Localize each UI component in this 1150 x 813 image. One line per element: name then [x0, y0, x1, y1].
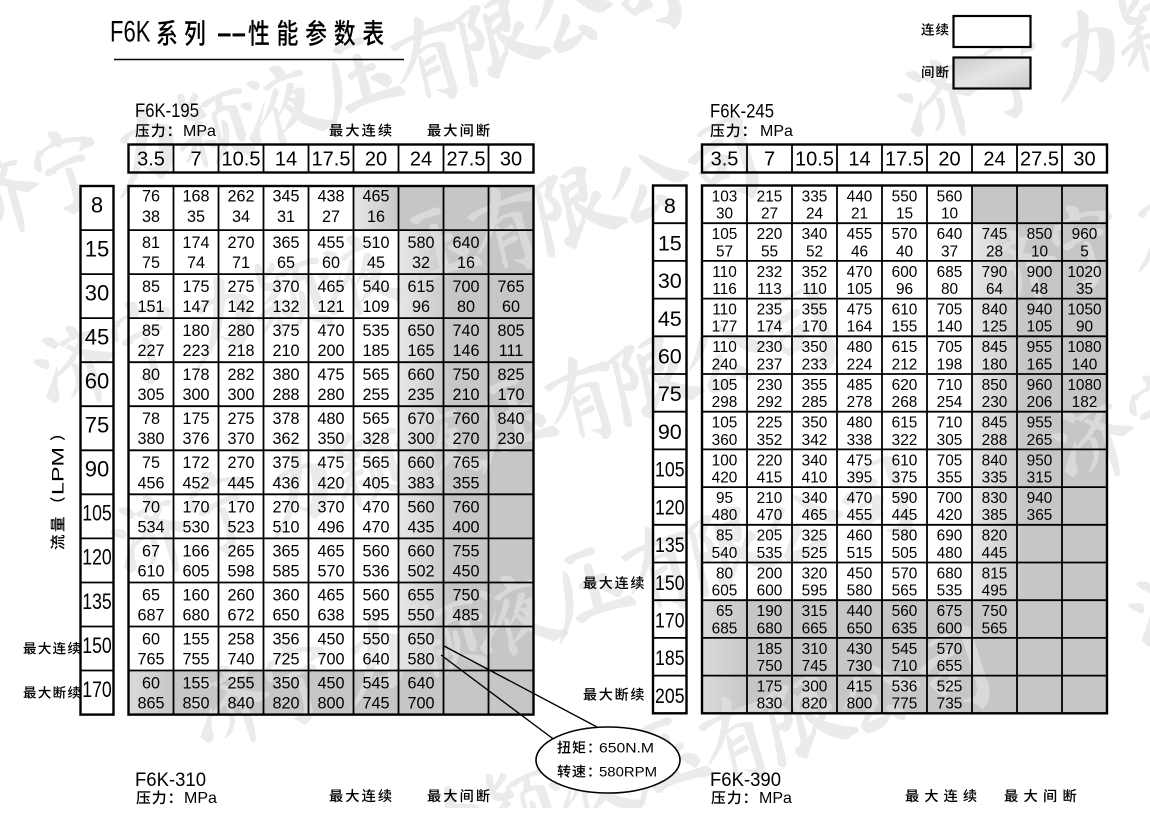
- svg-text:103: 103: [712, 188, 738, 205]
- svg-text:60: 60: [142, 675, 160, 693]
- svg-text:430: 430: [847, 641, 873, 658]
- svg-text:595: 595: [802, 583, 828, 600]
- svg-text:550: 550: [407, 606, 434, 624]
- svg-text:76: 76: [142, 188, 160, 206]
- svg-text:445: 445: [892, 507, 918, 524]
- svg-text:F6K-390: F6K-390: [710, 769, 781, 791]
- svg-text:80: 80: [142, 366, 160, 384]
- svg-text:185: 185: [757, 641, 783, 658]
- svg-text:405: 405: [362, 474, 389, 492]
- svg-text:206: 206: [1027, 394, 1053, 411]
- svg-text:110: 110: [712, 339, 737, 356]
- svg-text:232: 232: [757, 264, 783, 281]
- svg-text:450: 450: [452, 562, 479, 580]
- svg-text:305: 305: [937, 432, 963, 449]
- svg-text:335: 335: [802, 188, 828, 205]
- svg-text:160: 160: [182, 586, 209, 604]
- svg-text:185: 185: [362, 342, 389, 360]
- svg-text:90: 90: [658, 420, 682, 444]
- svg-text:164: 164: [847, 319, 873, 336]
- svg-text:180: 180: [982, 356, 1008, 373]
- svg-text:638: 638: [317, 606, 344, 624]
- svg-text:170: 170: [227, 498, 254, 516]
- svg-text:155: 155: [892, 319, 918, 336]
- svg-text:210: 210: [272, 342, 299, 360]
- svg-text:470: 470: [847, 264, 873, 281]
- svg-text:740: 740: [227, 651, 254, 669]
- svg-text:640: 640: [362, 651, 389, 669]
- svg-text:470: 470: [317, 322, 344, 340]
- svg-text:F6K-245: F6K-245: [710, 101, 774, 123]
- svg-text:470: 470: [362, 518, 389, 536]
- svg-text:545: 545: [892, 641, 918, 658]
- svg-text:175: 175: [182, 410, 209, 428]
- svg-text:227: 227: [137, 342, 164, 360]
- svg-text:46: 46: [851, 243, 868, 260]
- svg-text:580: 580: [407, 234, 434, 252]
- svg-text:30: 30: [716, 206, 733, 223]
- svg-text:75: 75: [142, 254, 160, 272]
- svg-text:7: 7: [764, 149, 775, 171]
- svg-text:465: 465: [362, 188, 389, 206]
- svg-text:10: 10: [1031, 243, 1048, 260]
- svg-text:338: 338: [847, 432, 873, 449]
- svg-text:170: 170: [182, 498, 209, 516]
- svg-text:230: 230: [982, 394, 1008, 411]
- svg-text:485: 485: [452, 606, 479, 624]
- svg-text:485: 485: [847, 377, 873, 394]
- svg-text:580RPM: 580RPM: [599, 764, 657, 780]
- svg-text:550: 550: [892, 188, 918, 205]
- svg-text:320: 320: [802, 565, 828, 582]
- svg-text:580: 580: [847, 583, 873, 600]
- svg-text:378: 378: [272, 410, 299, 428]
- svg-text:MPa: MPa: [183, 123, 216, 140]
- svg-text:730: 730: [847, 658, 873, 675]
- svg-text:380: 380: [137, 430, 164, 448]
- svg-text:595: 595: [362, 606, 389, 624]
- svg-text:282: 282: [227, 366, 254, 384]
- svg-text:27: 27: [322, 208, 340, 226]
- svg-text:155: 155: [182, 675, 209, 693]
- svg-text:30: 30: [85, 280, 109, 305]
- svg-text:820: 820: [272, 695, 299, 713]
- svg-text:455: 455: [317, 234, 344, 252]
- svg-text:640: 640: [937, 226, 963, 243]
- svg-text:570: 570: [317, 562, 344, 580]
- svg-text:105: 105: [847, 281, 873, 298]
- svg-text:24: 24: [410, 149, 432, 171]
- svg-text:75: 75: [85, 413, 109, 438]
- svg-text:218: 218: [227, 342, 254, 360]
- svg-text:755: 755: [452, 542, 479, 560]
- svg-text:355: 355: [452, 474, 479, 492]
- svg-text:536: 536: [892, 679, 918, 696]
- svg-text:190: 190: [757, 603, 783, 620]
- svg-text:225: 225: [757, 415, 783, 432]
- svg-text:840: 840: [497, 410, 524, 428]
- svg-text:438: 438: [317, 188, 344, 206]
- svg-text:113: 113: [757, 281, 782, 298]
- svg-text:550: 550: [362, 630, 389, 648]
- svg-text:615: 615: [892, 339, 918, 356]
- svg-text:5: 5: [1080, 243, 1089, 260]
- svg-text:340: 340: [802, 452, 828, 469]
- svg-text:32: 32: [412, 254, 430, 272]
- svg-text:445: 445: [227, 474, 254, 492]
- svg-text:480: 480: [712, 507, 738, 524]
- svg-text:325: 325: [802, 528, 828, 545]
- svg-text:F6K-310: F6K-310: [135, 769, 206, 791]
- svg-text:650: 650: [847, 620, 873, 637]
- svg-text:355: 355: [937, 470, 963, 487]
- svg-text:288: 288: [272, 386, 299, 404]
- svg-text:530: 530: [182, 518, 209, 536]
- svg-text:685: 685: [937, 264, 963, 281]
- svg-text:655: 655: [937, 658, 963, 675]
- svg-text:570: 570: [892, 226, 918, 243]
- svg-text:580: 580: [407, 651, 434, 669]
- svg-text:660: 660: [407, 366, 434, 384]
- svg-text:475: 475: [847, 452, 873, 469]
- svg-text:105: 105: [82, 501, 112, 526]
- svg-text:765: 765: [137, 651, 164, 669]
- svg-text:415: 415: [757, 470, 783, 487]
- svg-text:365: 365: [272, 542, 299, 560]
- svg-text:480: 480: [937, 545, 963, 562]
- svg-text:475: 475: [847, 302, 873, 319]
- svg-text:MPa: MPa: [184, 790, 217, 807]
- svg-text:690: 690: [937, 528, 963, 545]
- svg-text:342: 342: [802, 432, 828, 449]
- svg-text:52: 52: [806, 243, 823, 260]
- svg-text:67: 67: [142, 542, 160, 560]
- svg-text:300: 300: [407, 430, 434, 448]
- svg-text:60: 60: [502, 298, 520, 316]
- svg-text:255: 255: [227, 675, 254, 693]
- svg-text:155: 155: [182, 630, 209, 648]
- svg-text:322: 322: [892, 432, 918, 449]
- svg-text:65: 65: [277, 254, 295, 272]
- svg-text:210: 210: [757, 490, 783, 507]
- svg-text:535: 535: [937, 583, 963, 600]
- svg-text:745: 745: [982, 226, 1008, 243]
- svg-text:220: 220: [757, 452, 783, 469]
- svg-text:710: 710: [937, 377, 963, 394]
- svg-text:830: 830: [757, 696, 783, 713]
- svg-text:705: 705: [937, 452, 963, 469]
- svg-text:165: 165: [407, 342, 434, 360]
- svg-text:85: 85: [142, 278, 160, 296]
- svg-text:14: 14: [275, 149, 297, 171]
- svg-text:174: 174: [182, 234, 209, 252]
- svg-text:200: 200: [757, 565, 783, 582]
- svg-text:F6K: F6K: [110, 16, 151, 49]
- svg-text:254: 254: [937, 394, 963, 411]
- svg-text:845: 845: [982, 415, 1008, 432]
- svg-text:1080: 1080: [1067, 377, 1101, 394]
- svg-text:710: 710: [937, 415, 963, 432]
- svg-text:672: 672: [227, 606, 254, 624]
- svg-text:278: 278: [847, 394, 873, 411]
- svg-text:298: 298: [712, 394, 738, 411]
- svg-text:85: 85: [142, 322, 160, 340]
- svg-text:710: 710: [892, 658, 918, 675]
- svg-text:147: 147: [182, 298, 209, 316]
- svg-text:590: 590: [892, 490, 918, 507]
- svg-text:505: 505: [892, 545, 918, 562]
- svg-text:81: 81: [142, 234, 160, 252]
- svg-text:20: 20: [365, 149, 387, 171]
- svg-text:375: 375: [272, 322, 299, 340]
- svg-text:850: 850: [1027, 226, 1053, 243]
- svg-text:865: 865: [137, 695, 164, 713]
- svg-text:400: 400: [452, 518, 479, 536]
- svg-text:775: 775: [892, 696, 918, 713]
- svg-text:650: 650: [407, 630, 434, 648]
- svg-text:815: 815: [982, 565, 1008, 582]
- svg-text:74: 74: [187, 254, 205, 272]
- svg-text:830: 830: [982, 490, 1008, 507]
- svg-text:80: 80: [457, 298, 475, 316]
- svg-text:265: 265: [227, 542, 254, 560]
- svg-text:545: 545: [362, 675, 389, 693]
- svg-text:365: 365: [1027, 507, 1053, 524]
- svg-text:650: 650: [407, 322, 434, 340]
- svg-text:340: 340: [802, 490, 828, 507]
- svg-text:370: 370: [317, 498, 344, 516]
- svg-text:223: 223: [182, 342, 209, 360]
- svg-text:745: 745: [802, 658, 828, 675]
- svg-text:440: 440: [847, 188, 873, 205]
- svg-text:100: 100: [712, 452, 738, 469]
- svg-text:237: 237: [757, 356, 783, 373]
- svg-text:233: 233: [802, 356, 828, 373]
- svg-text:534: 534: [137, 518, 164, 536]
- svg-text:28: 28: [986, 243, 1003, 260]
- svg-text:365: 365: [272, 234, 299, 252]
- svg-text:38: 38: [142, 208, 160, 226]
- svg-text:395: 395: [847, 470, 873, 487]
- svg-text:30: 30: [658, 269, 682, 293]
- svg-text:255: 255: [362, 386, 389, 404]
- svg-text:515: 515: [847, 545, 873, 562]
- svg-text:465: 465: [802, 507, 828, 524]
- svg-text:605: 605: [182, 562, 209, 580]
- svg-text:560: 560: [362, 586, 389, 604]
- svg-text:495: 495: [982, 583, 1008, 600]
- svg-text:383: 383: [407, 474, 434, 492]
- svg-text:110: 110: [712, 264, 737, 281]
- svg-text:598: 598: [227, 562, 254, 580]
- svg-text:375: 375: [892, 470, 918, 487]
- svg-text:675: 675: [937, 603, 963, 620]
- svg-text:17.5: 17.5: [885, 149, 924, 171]
- svg-text:496: 496: [317, 518, 344, 536]
- svg-text:950: 950: [1027, 452, 1053, 469]
- svg-text:LPM: LPM: [48, 447, 67, 495]
- svg-text:535: 535: [757, 545, 783, 562]
- svg-text:502: 502: [407, 562, 434, 580]
- svg-text:700: 700: [937, 490, 963, 507]
- svg-text:350: 350: [317, 430, 344, 448]
- svg-text:57: 57: [716, 243, 733, 260]
- svg-text:700: 700: [317, 651, 344, 669]
- svg-text:470: 470: [757, 507, 783, 524]
- svg-text:165: 165: [1027, 356, 1053, 373]
- svg-text:340: 340: [802, 226, 828, 243]
- svg-text:7: 7: [190, 149, 201, 171]
- svg-text:105: 105: [712, 377, 738, 394]
- svg-text:350: 350: [802, 339, 828, 356]
- svg-text:8: 8: [664, 194, 676, 218]
- svg-text:75: 75: [142, 454, 160, 472]
- svg-text:24: 24: [806, 206, 824, 223]
- svg-text:280: 280: [317, 386, 344, 404]
- svg-text:132: 132: [272, 298, 299, 316]
- svg-text:3.5: 3.5: [137, 149, 165, 171]
- svg-text:565: 565: [982, 620, 1008, 637]
- svg-text:96: 96: [896, 281, 913, 298]
- svg-text:955: 955: [1027, 415, 1053, 432]
- svg-text:650N.M: 650N.M: [599, 740, 654, 756]
- svg-text:560: 560: [362, 542, 389, 560]
- svg-text:230: 230: [497, 430, 524, 448]
- svg-text:750: 750: [757, 658, 783, 675]
- svg-text:24: 24: [983, 149, 1005, 171]
- svg-text:37: 37: [941, 243, 958, 260]
- svg-text:224: 224: [847, 356, 873, 373]
- svg-text:200: 200: [317, 342, 344, 360]
- svg-text:105: 105: [712, 226, 738, 243]
- svg-text:660: 660: [407, 454, 434, 472]
- svg-text:510: 510: [362, 234, 389, 252]
- svg-text:465: 465: [317, 542, 344, 560]
- svg-text:35: 35: [1076, 281, 1093, 298]
- svg-text:85: 85: [716, 528, 733, 545]
- svg-text:380: 380: [272, 366, 299, 384]
- svg-text:940: 940: [1027, 490, 1053, 507]
- svg-text:665: 665: [802, 620, 828, 637]
- svg-text:230: 230: [757, 339, 783, 356]
- svg-text:15: 15: [85, 236, 109, 261]
- svg-text:305: 305: [137, 386, 164, 404]
- svg-text:215: 215: [757, 188, 783, 205]
- svg-text:170: 170: [802, 319, 828, 336]
- svg-text:620: 620: [892, 377, 918, 394]
- svg-text:465: 465: [317, 278, 344, 296]
- svg-text:240: 240: [712, 356, 738, 373]
- svg-text:840: 840: [227, 695, 254, 713]
- svg-text:310: 310: [802, 641, 828, 658]
- svg-text:60: 60: [85, 369, 109, 394]
- svg-text:410: 410: [802, 470, 828, 487]
- svg-text:560: 560: [407, 498, 434, 516]
- svg-text:300: 300: [802, 679, 828, 696]
- svg-text:750: 750: [982, 603, 1008, 620]
- svg-text:172: 172: [182, 454, 209, 472]
- svg-text:376: 376: [182, 430, 209, 448]
- svg-text:48: 48: [1031, 281, 1048, 298]
- svg-text:292: 292: [757, 394, 783, 411]
- svg-text:95: 95: [716, 490, 733, 507]
- svg-text:205: 205: [757, 528, 783, 545]
- svg-text:235: 235: [407, 386, 434, 404]
- svg-text:1020: 1020: [1067, 264, 1101, 281]
- svg-text:670: 670: [407, 410, 434, 428]
- svg-text:605: 605: [712, 583, 738, 600]
- svg-text:265: 265: [1027, 432, 1053, 449]
- svg-text:350: 350: [272, 675, 299, 693]
- svg-text:166: 166: [182, 542, 209, 560]
- svg-text:198: 198: [937, 356, 963, 373]
- svg-text:175: 175: [182, 278, 209, 296]
- svg-text:635: 635: [892, 620, 918, 637]
- svg-text:640: 640: [407, 675, 434, 693]
- svg-text:270: 270: [452, 430, 479, 448]
- svg-text:356: 356: [272, 630, 299, 648]
- svg-text:470: 470: [847, 490, 873, 507]
- svg-text:360: 360: [712, 432, 738, 449]
- svg-text:220: 220: [757, 226, 783, 243]
- svg-text:230: 230: [757, 377, 783, 394]
- svg-text:270: 270: [227, 454, 254, 472]
- svg-text:31: 31: [277, 208, 295, 226]
- svg-text:660: 660: [407, 542, 434, 560]
- svg-text:140: 140: [1072, 356, 1098, 373]
- svg-text:475: 475: [317, 454, 344, 472]
- svg-text:820: 820: [802, 696, 828, 713]
- svg-text:315: 315: [1027, 470, 1053, 487]
- svg-text:960: 960: [1072, 226, 1098, 243]
- svg-text:111: 111: [499, 342, 524, 360]
- svg-text:385: 385: [982, 507, 1008, 524]
- svg-text:940: 940: [1027, 302, 1053, 319]
- svg-text:960: 960: [1027, 377, 1053, 394]
- svg-text:90: 90: [1076, 319, 1093, 336]
- svg-text:355: 355: [802, 302, 828, 319]
- svg-text:8: 8: [91, 192, 103, 217]
- svg-text:150: 150: [655, 571, 685, 595]
- svg-text:480: 480: [317, 410, 344, 428]
- svg-text:212: 212: [892, 356, 918, 373]
- svg-text:610: 610: [892, 452, 918, 469]
- svg-text:540: 540: [712, 545, 738, 562]
- svg-text:825: 825: [497, 366, 524, 384]
- svg-text:175: 175: [757, 679, 783, 696]
- svg-text:21: 21: [851, 206, 868, 223]
- svg-text:30: 30: [1073, 149, 1095, 171]
- svg-text:480: 480: [847, 415, 873, 432]
- svg-text:45: 45: [658, 307, 682, 331]
- svg-text:182: 182: [1072, 394, 1098, 411]
- svg-text:452: 452: [182, 474, 209, 492]
- svg-text:34: 34: [232, 208, 250, 226]
- svg-text:121: 121: [317, 298, 344, 316]
- svg-text:480: 480: [847, 339, 873, 356]
- svg-text:687: 687: [137, 606, 164, 624]
- svg-text:535: 535: [362, 322, 389, 340]
- svg-text:725: 725: [272, 651, 299, 669]
- svg-text:436: 436: [272, 474, 299, 492]
- svg-text:585: 585: [272, 562, 299, 580]
- svg-text:80: 80: [716, 565, 733, 582]
- svg-text:510: 510: [272, 518, 299, 536]
- svg-text:262: 262: [227, 188, 254, 206]
- svg-text:900: 900: [1027, 264, 1053, 281]
- svg-text:456: 456: [137, 474, 164, 492]
- svg-text:MPa: MPa: [760, 123, 793, 140]
